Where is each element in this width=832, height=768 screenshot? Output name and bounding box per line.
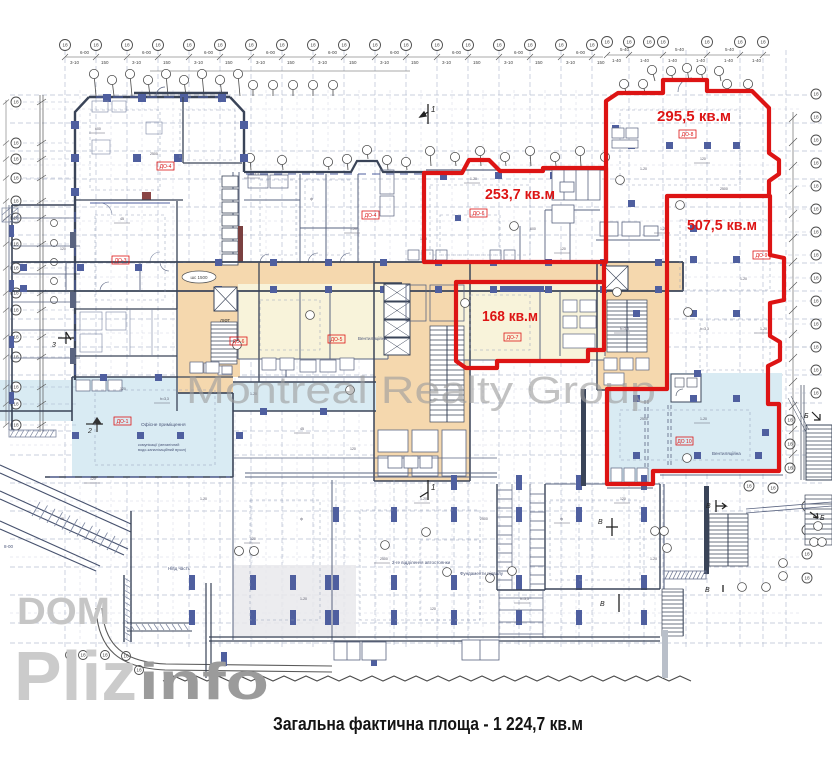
svg-text:168 кв.м: 168 кв.м [482,309,538,325]
svg-text:1б: 1б [496,43,502,48]
svg-text:1б: 1б [13,385,19,390]
svg-text:45: 45 [60,517,64,521]
svg-text:150: 150 [349,60,357,65]
svg-text:1б: 1б [13,423,19,428]
svg-text:1б: 1б [403,43,409,48]
svg-text:2-ге відділення автостоянки: 2-ге відділення автостоянки [392,560,451,565]
svg-text:1-20: 1-20 [200,497,207,501]
svg-text:DOM: DOM [17,591,110,633]
svg-text:120: 120 [430,607,436,611]
svg-text:1б: 1б [813,115,819,120]
svg-text:1б: 1б [813,207,819,212]
svg-text:1б: 1б [465,43,471,48]
svg-text:45: 45 [120,217,124,221]
svg-text:1б: 1б [787,442,793,447]
svg-text:ДО-6: ДО-6 [473,211,485,217]
svg-text:1-40: 1-40 [668,58,678,63]
svg-text:295,5 кв.м: 295,5 кв.м [657,109,731,125]
svg-text:Pliz: Pliz [14,637,137,715]
svg-text:Montreal Realty Group: Montreal Realty Group [186,370,656,412]
svg-text:Нівд часть: Нівд часть [168,566,191,571]
svg-text:1: 1 [431,483,435,492]
svg-text:2500: 2500 [640,417,648,421]
svg-text:1б: 1б [813,276,819,281]
svg-text:1б: 1б [787,466,793,471]
svg-text:Б: Б [804,413,809,420]
svg-text:253,7 кв.м: 253,7 кв.м [485,187,555,203]
svg-text:2500: 2500 [380,557,388,561]
svg-text:1: 1 [431,105,435,114]
svg-text:ф: ф [300,517,303,521]
svg-text:6-00: 6-00 [204,50,214,55]
svg-text:150: 150 [535,60,543,65]
svg-text:600: 600 [95,127,101,131]
svg-text:1-40: 1-40 [612,58,622,63]
svg-text:1б: 1б [341,43,347,48]
svg-text:120: 120 [90,477,96,481]
svg-text:h=3,3: h=3,3 [250,172,259,176]
svg-text:В: В [600,601,605,608]
svg-text:1-40: 1-40 [640,58,650,63]
svg-text:1-20: 1-20 [420,497,427,501]
svg-text:120: 120 [60,247,66,251]
svg-text:1-20: 1-20 [700,417,707,421]
svg-text:1б: 1б [737,40,743,45]
svg-text:1б: 1б [660,40,666,45]
svg-text:1б: 1б [813,345,819,350]
svg-text:ДО-4: ДО-4 [160,164,172,170]
svg-text:1б: 1б [13,100,19,105]
svg-text:Офісне приміщення: Офісне приміщення [141,422,186,428]
svg-text:120: 120 [350,447,356,451]
svg-text:150: 150 [473,60,481,65]
svg-text:1б: 1б [704,40,710,45]
svg-text:ДО 10: ДО 10 [677,439,691,445]
svg-text:6-00: 6-00 [266,50,276,55]
svg-text:1б: 1б [804,576,810,581]
svg-text:Фундаменти підвалу: Фундаменти підвалу [460,571,504,576]
svg-text:6-00: 6-00 [80,50,90,55]
svg-text:1б: 1б [13,308,19,313]
svg-text:1б: 1б [804,552,810,557]
svg-text:1б: 1б [760,40,766,45]
svg-text:6-00: 6-00 [452,50,462,55]
svg-text:info: info [139,653,269,711]
svg-text:1б: 1б [124,43,130,48]
svg-text:Загальна фактична площа - 1 22: Загальна фактична площа - 1 224,7 кв.м [273,713,583,734]
svg-text:1б: 1б [279,43,285,48]
svg-text:1-20: 1-20 [760,327,767,331]
svg-text:шс 1500: шс 1500 [190,275,208,280]
svg-text:1б: 1б [589,43,595,48]
svg-text:1б: 1б [813,299,819,304]
svg-text:Б: Б [820,515,825,522]
svg-text:6-00: 6-00 [328,50,338,55]
svg-text:1б: 1б [527,43,533,48]
svg-text:120: 120 [120,387,126,391]
svg-text:h=3,3: h=3,3 [700,327,709,331]
svg-text:120: 120 [250,537,256,541]
svg-text:1б: 1б [787,418,793,423]
svg-text:1-20: 1-20 [740,277,747,281]
svg-text:1б: 1б [813,92,819,97]
svg-text:8-00: 8-00 [4,544,14,549]
svg-text:600: 600 [530,227,536,231]
svg-text:3-10: 3-10 [566,60,576,65]
svg-text:1б: 1б [372,43,378,48]
svg-text:45: 45 [300,427,304,431]
svg-text:3-10: 3-10 [318,60,328,65]
svg-text:1б: 1б [813,230,819,235]
svg-text:1б: 1б [813,368,819,373]
svg-text:150: 150 [101,60,109,65]
svg-text:1б: 1б [13,141,19,146]
svg-text:150: 150 [225,60,233,65]
svg-text:1б: 1б [813,138,819,143]
svg-text:ЛІФТ: ЛІФТ [220,318,230,323]
svg-text:1-20: 1-20 [470,177,477,181]
svg-text:2500: 2500 [720,187,728,191]
svg-text:1б: 1б [813,253,819,258]
svg-text:h=3,3: h=3,3 [620,327,629,331]
svg-text:3-10: 3-10 [256,60,266,65]
svg-text:1б: 1б [13,335,19,340]
svg-text:1б: 1б [13,355,19,360]
svg-text:120: 120 [560,247,566,251]
svg-text:1б: 1б [626,40,632,45]
svg-text:3: 3 [52,342,56,349]
svg-text:150: 150 [411,60,419,65]
svg-text:1б: 1б [604,40,610,45]
svg-text:1-40: 1-40 [696,58,706,63]
svg-text:1б: 1б [93,43,99,48]
svg-text:1б: 1б [646,40,652,45]
svg-text:5-40: 5-40 [725,47,735,52]
svg-text:1б: 1б [155,43,161,48]
svg-text:6-00: 6-00 [514,50,524,55]
svg-text:1б: 1б [770,486,776,491]
svg-text:6-00: 6-00 [390,50,400,55]
svg-text:ф: ф [560,517,563,521]
svg-text:1б: 1б [13,402,19,407]
svg-text:ф: ф [310,197,313,201]
svg-text:1б: 1б [746,484,752,489]
svg-text:1-20: 1-20 [640,167,647,171]
svg-text:ДО-3: ДО-3 [115,258,127,264]
svg-text:1б: 1б [813,161,819,166]
svg-text:1б: 1б [13,266,19,271]
svg-text:ДО-4: ДО-4 [365,213,377,219]
svg-text:1-20: 1-20 [650,557,657,561]
svg-text:1б: 1б [813,391,819,396]
svg-text:1б: 1б [13,176,19,181]
svg-text:6-00: 6-00 [576,50,586,55]
svg-text:Вентиляційна: Вентиляційна [358,335,387,341]
svg-text:507,5 кв.м: 507,5 кв.м [687,218,757,234]
svg-text:2: 2 [87,428,92,435]
svg-text:2500: 2500 [150,152,158,156]
svg-text:1б: 1б [813,184,819,189]
svg-text:3-10: 3-10 [194,60,204,65]
svg-text:1б: 1б [13,199,19,204]
svg-text:ДО-1: ДО-1 [117,419,129,425]
svg-text:1б: 1б [62,43,68,48]
svg-text:1-40: 1-40 [724,58,734,63]
svg-text:1б: 1б [217,43,223,48]
svg-text:150: 150 [287,60,295,65]
svg-text:3-10: 3-10 [380,60,390,65]
svg-text:ДО-7: ДО-7 [507,335,519,341]
svg-text:h=3,3: h=3,3 [160,397,169,401]
svg-text:6-00: 6-00 [142,50,152,55]
svg-text:1б: 1б [248,43,254,48]
svg-text:1-20: 1-20 [350,227,357,231]
svg-text:В: В [706,503,711,510]
svg-text:120: 120 [620,497,626,501]
svg-text:3-10: 3-10 [504,60,514,65]
svg-text:2500: 2500 [480,517,488,521]
svg-text:В: В [598,519,603,526]
svg-text:3-10: 3-10 [442,60,452,65]
svg-text:3-10: 3-10 [132,60,142,65]
svg-text:ДО-5: ДО-5 [331,337,343,343]
svg-text:В: В [705,587,710,594]
svg-text:ДО-8: ДО-8 [682,132,694,138]
svg-text:ДО-9: ДО-9 [756,253,768,259]
svg-text:120: 120 [700,157,706,161]
svg-text:комунікації (механічний: комунікації (механічний [138,443,179,447]
svg-text:1б: 1б [186,43,192,48]
svg-text:1б: 1б [813,322,819,327]
svg-text:1б: 1б [434,43,440,48]
svg-text:150: 150 [597,60,605,65]
svg-text:3-10: 3-10 [70,60,80,65]
svg-text:h=3,3: h=3,3 [520,597,529,601]
svg-text:150: 150 [163,60,171,65]
svg-text:Вентиляційна: Вентиляційна [712,450,741,456]
svg-text:1б: 1б [13,157,19,162]
svg-text:ДО-6: ДО-6 [233,339,245,345]
svg-text:1-40: 1-40 [752,58,762,63]
svg-text:1б: 1б [558,43,564,48]
svg-text:1-20: 1-20 [300,597,307,601]
svg-text:1б: 1б [310,43,316,48]
svg-text:водо-каналізаційний вузол): водо-каналізаційний вузол) [138,448,187,452]
svg-text:5-40: 5-40 [675,47,685,52]
